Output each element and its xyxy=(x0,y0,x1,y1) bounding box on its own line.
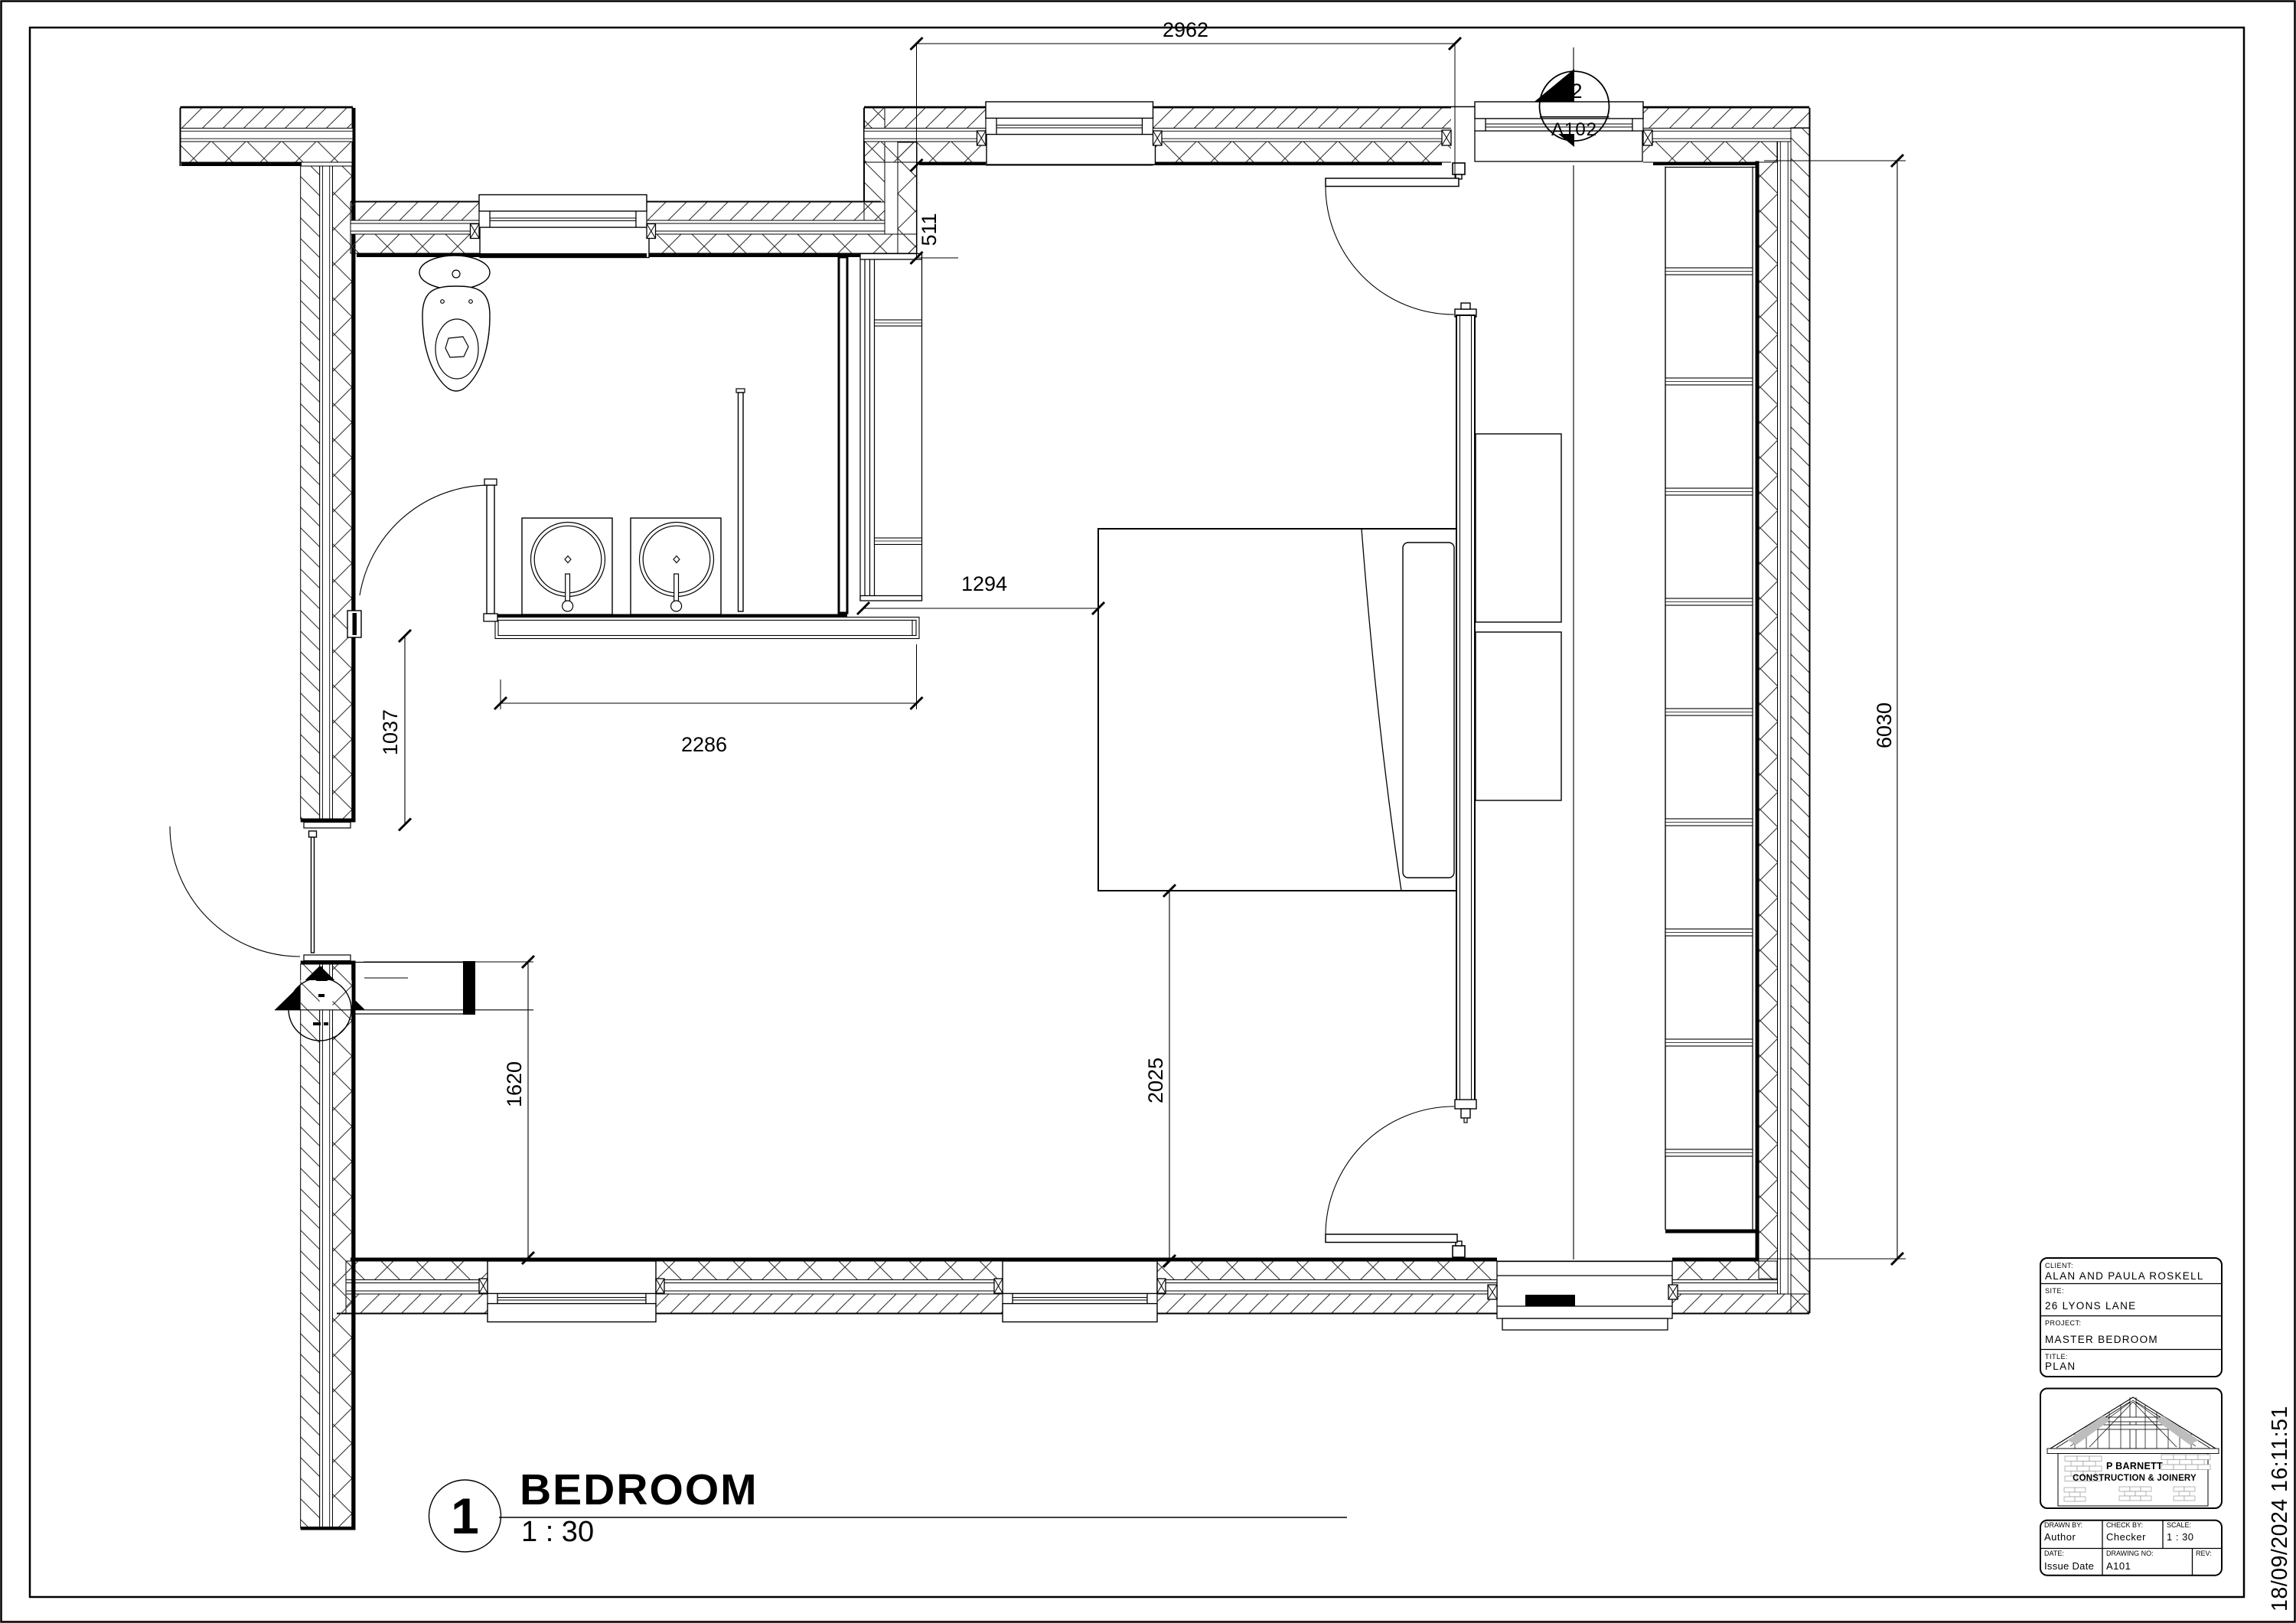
svg-text:PLAN: PLAN xyxy=(2045,1361,2076,1372)
svg-text:SITE:: SITE: xyxy=(2045,1287,2064,1295)
svg-text:SCALE:: SCALE: xyxy=(2167,1521,2191,1529)
svg-text:6030: 6030 xyxy=(1873,702,1896,748)
svg-text:REV:: REV: xyxy=(2196,1550,2212,1557)
svg-text:2286: 2286 xyxy=(681,733,727,756)
svg-text:1620: 1620 xyxy=(503,1061,526,1107)
svg-text:18/09/2024 16:11:51: 18/09/2024 16:11:51 xyxy=(2268,1406,2292,1612)
svg-text:DRAWN BY:: DRAWN BY: xyxy=(2044,1521,2082,1529)
svg-text:Author: Author xyxy=(2044,1531,2076,1543)
svg-text:ALAN AND PAULA ROSKELL: ALAN AND PAULA ROSKELL xyxy=(2045,1270,2204,1282)
svg-text:1 : 30: 1 : 30 xyxy=(2167,1531,2194,1543)
svg-text:PROJECT:: PROJECT: xyxy=(2045,1319,2082,1327)
svg-text:CONSTRUCTION & JOINERY: CONSTRUCTION & JOINERY xyxy=(2073,1474,2197,1483)
svg-text:26 LYONS LANE: 26 LYONS LANE xyxy=(2045,1300,2136,1312)
svg-text:1294: 1294 xyxy=(961,572,1007,595)
svg-text:Checker: Checker xyxy=(2106,1531,2146,1543)
svg-text:BEDROOM: BEDROOM xyxy=(520,1465,758,1514)
svg-text:DATE:: DATE: xyxy=(2044,1550,2064,1557)
svg-text:TITLE:: TITLE: xyxy=(2045,1353,2068,1361)
svg-text:A101: A101 xyxy=(2106,1560,2131,1572)
svg-text:CLIENT:: CLIENT: xyxy=(2045,1262,2073,1269)
svg-text:MASTER BEDROOM: MASTER BEDROOM xyxy=(2045,1334,2158,1345)
svg-text:511: 511 xyxy=(918,213,941,246)
svg-text:Issue Date: Issue Date xyxy=(2044,1560,2094,1572)
svg-text:CHECK BY:: CHECK BY: xyxy=(2106,1521,2143,1529)
svg-text:2025: 2025 xyxy=(1144,1058,1167,1103)
svg-text:DRAWING NO:: DRAWING NO: xyxy=(2106,1550,2154,1557)
svg-text:P BARNETT: P BARNETT xyxy=(2106,1461,2163,1471)
svg-text:1037: 1037 xyxy=(379,709,402,755)
svg-text:A102: A102 xyxy=(1551,119,1597,140)
svg-text:1: 1 xyxy=(451,1488,479,1544)
svg-text:2962: 2962 xyxy=(1163,18,1208,41)
svg-text:1 : 30: 1 : 30 xyxy=(521,1516,594,1548)
svg-text:2: 2 xyxy=(1570,80,1582,103)
